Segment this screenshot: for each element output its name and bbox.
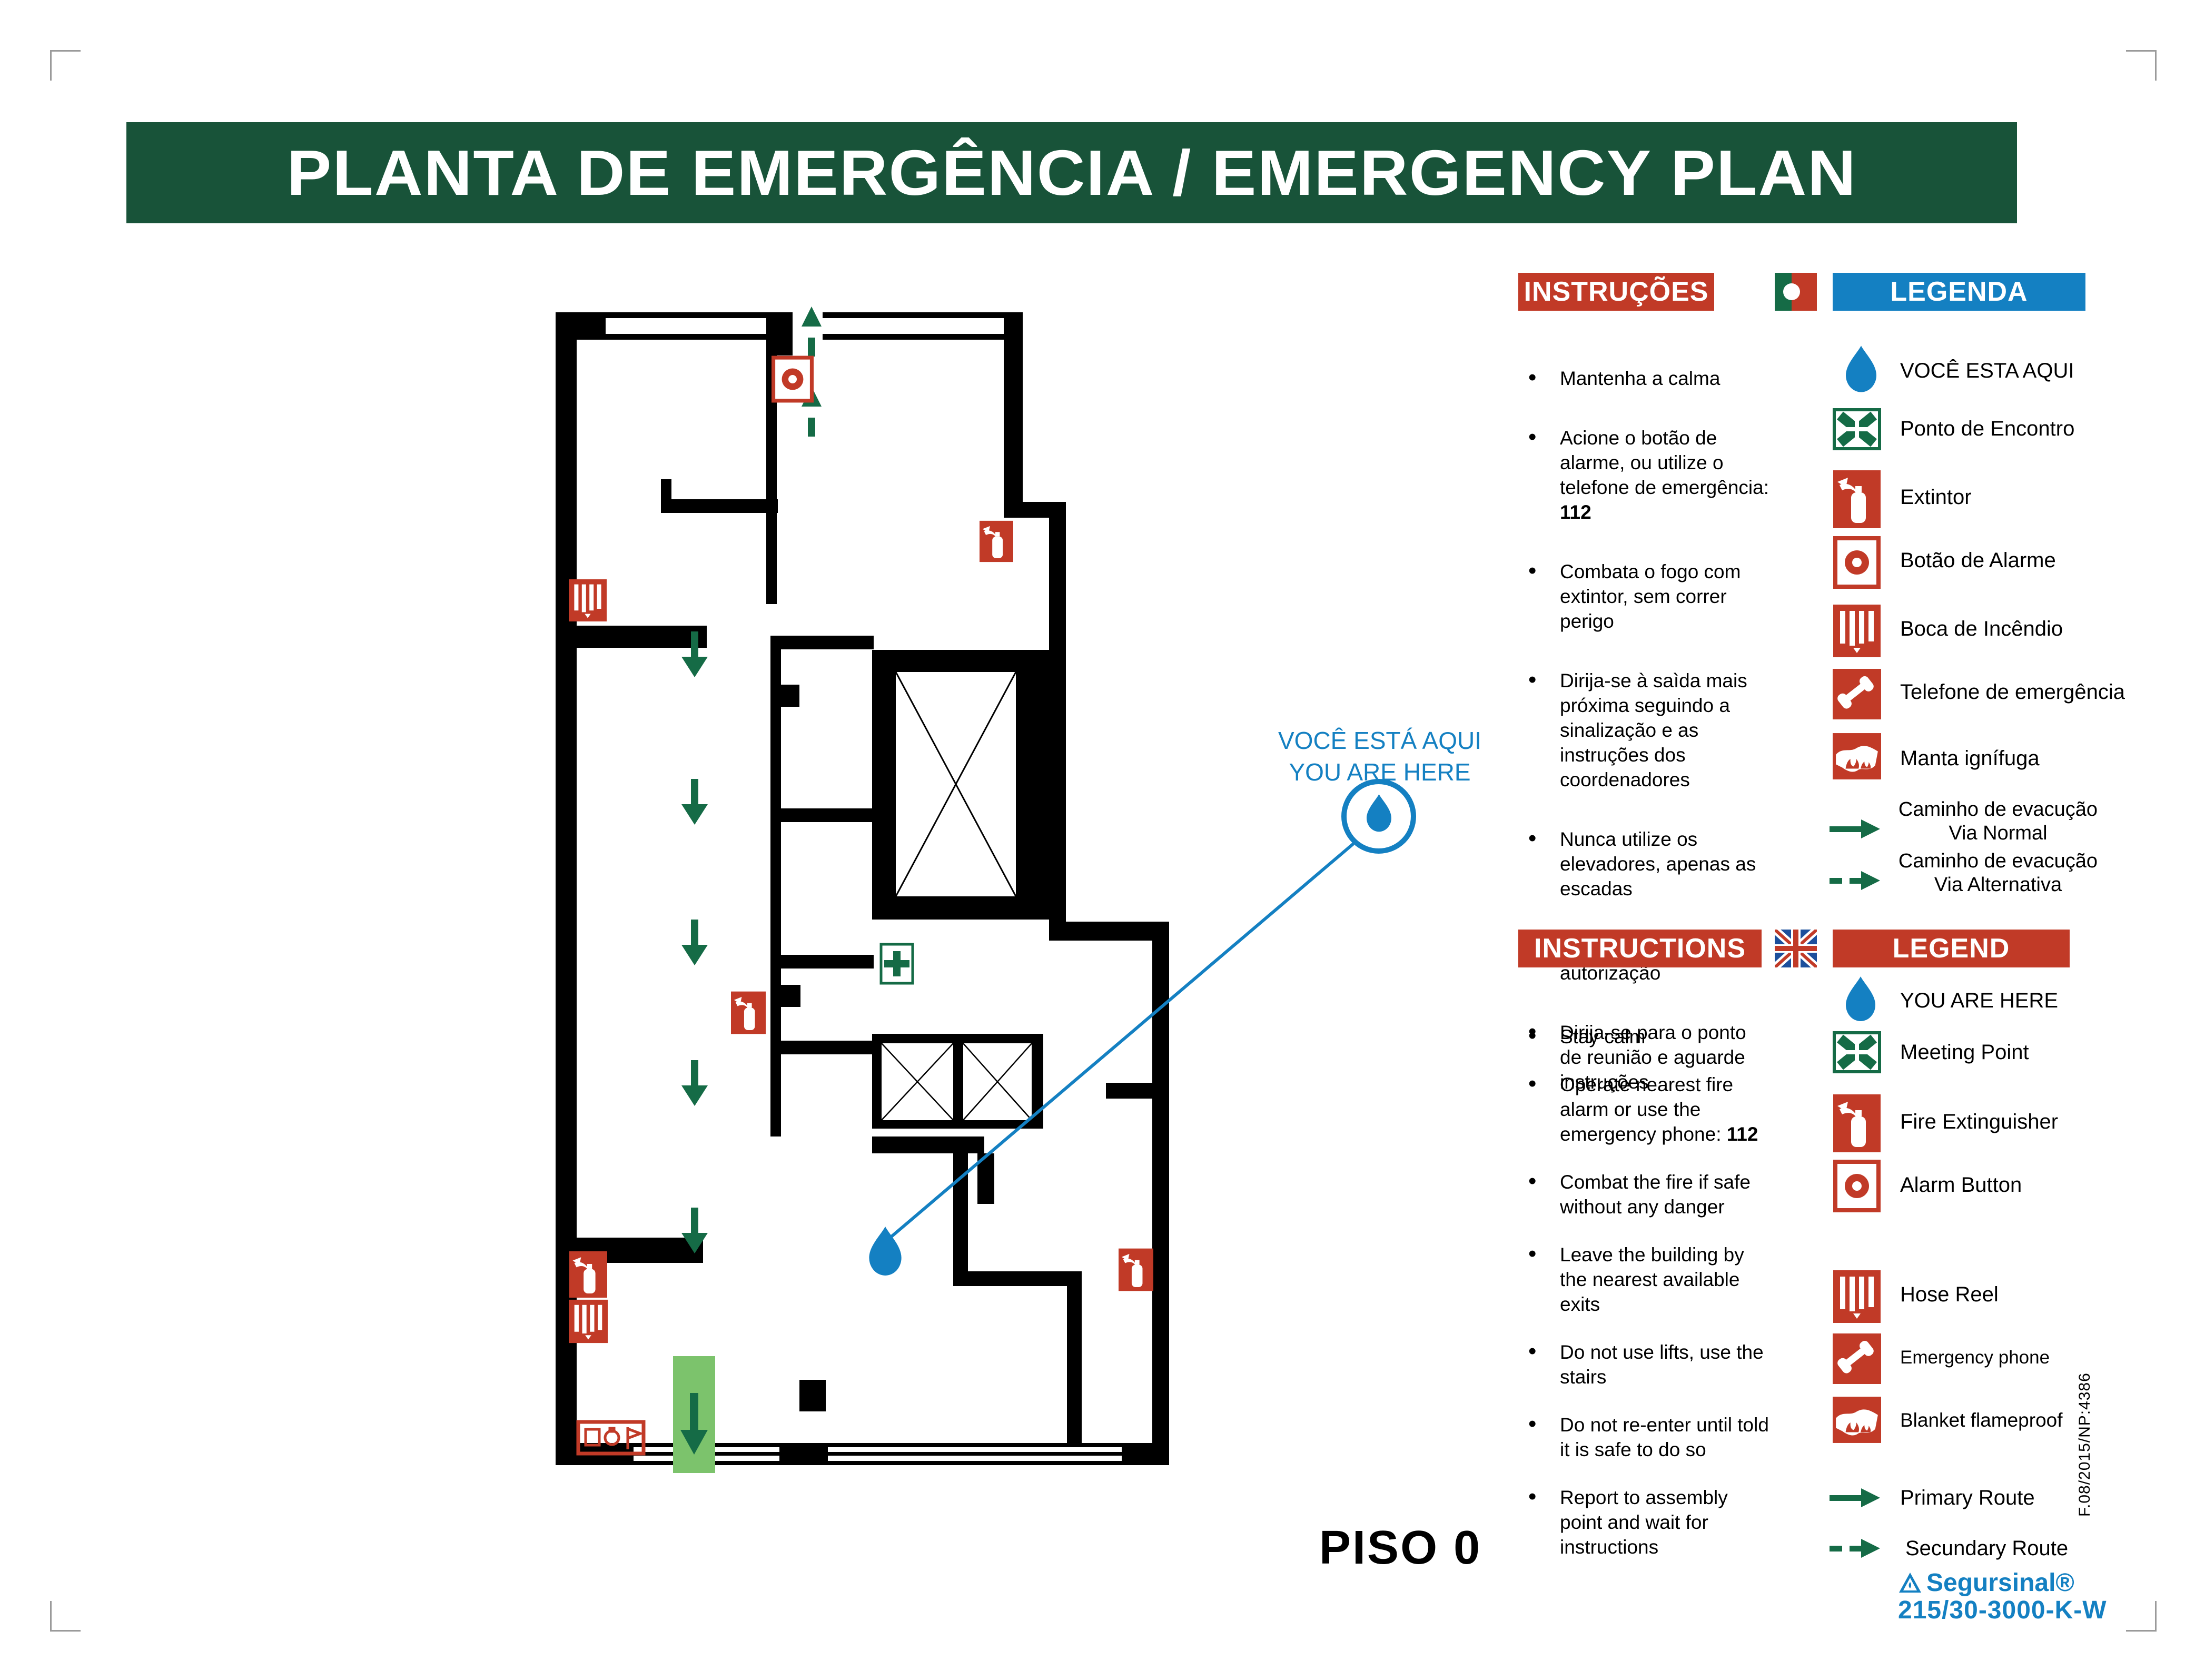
list-item: Do not re-enter until told it is safe to… — [1522, 1412, 1769, 1462]
legend-label: Telefone de emergência — [1900, 680, 2125, 704]
fire-extinguisher-icon — [1833, 470, 1881, 528]
pt-instructions-list: Mantenha a calma Acione o botão de alarm… — [1522, 366, 1769, 1129]
list-item: Do not use lifts, use the stairs — [1522, 1340, 1769, 1389]
list-item: Combat the fire if safe without any dang… — [1522, 1170, 1769, 1219]
legend-label: Blanket flameproof — [1900, 1409, 2063, 1431]
fire-extinguisher-icon — [569, 1251, 607, 1298]
legend-label: Via Normal — [1893, 822, 2103, 845]
legend-label: YOU ARE HERE — [1900, 989, 2058, 1013]
portugal-flag-icon — [1775, 273, 1817, 311]
you-are-here-drop-icon — [1846, 975, 1875, 1023]
list-item: Report to assembly point and wait for in… — [1522, 1485, 1769, 1559]
secondary-route-arrow-icon — [1830, 1537, 1882, 1560]
fire-extinguisher-icon — [1833, 1094, 1881, 1152]
brand-triangle-icon — [1898, 1572, 1922, 1595]
meeting-point-icon — [1833, 1031, 1881, 1073]
walls — [556, 312, 1169, 1465]
legend-label: Botão de Alarme — [1900, 549, 2056, 572]
first-aid-icon — [881, 944, 913, 983]
list-item: Nunca utilize os elevadores, apenas as e… — [1522, 827, 1769, 901]
marker-label-pt: VOCÊ ESTÁ AQUI — [1278, 727, 1481, 754]
primary-route-arrow-icon — [1830, 1486, 1882, 1509]
legend-label: Primary Route — [1900, 1486, 2035, 1510]
crop-mark — [2126, 50, 2157, 81]
legend-label: Alarm Button — [1900, 1173, 2022, 1197]
list-item: Acione o botão de alarme, ou utilize o t… — [1522, 426, 1769, 525]
en-instructions-list: Stay calm Operate nearest fire alarm or … — [1522, 1024, 1769, 1583]
legend-label: Fire Extinguisher — [1900, 1110, 2058, 1134]
fire-extinguisher-icon — [980, 521, 1013, 562]
list-item: Stay calm — [1522, 1024, 1769, 1049]
primary-route-arrows — [681, 631, 708, 1253]
brand-code: 215/30-3000-K-W — [1898, 1596, 2107, 1625]
legend-label: Via Alternativa — [1893, 874, 2103, 896]
legend-label: Caminho de evacução — [1893, 798, 2103, 821]
emergency-plan-page: PLANTA DE EMERGÊNCIA / EMERGENCY PLAN — [0, 0, 2205, 1680]
page-title: PLANTA DE EMERGÊNCIA / EMERGENCY PLAN — [286, 136, 1856, 210]
marker-label-en: YOU ARE HERE — [1289, 758, 1470, 786]
brand-name: Segursinal® — [1926, 1568, 2074, 1597]
primary-route-arrow-icon — [1830, 817, 1882, 841]
legend-label: Ponto de Encontro — [1900, 417, 2074, 441]
legend-label: Emergency phone — [1900, 1347, 2050, 1368]
hose-reel-icon — [569, 1300, 608, 1343]
legend-label: Caminho de evacução — [1893, 850, 2103, 873]
secondary-route-arrow-icon — [1830, 869, 1882, 892]
crop-mark — [2126, 1601, 2157, 1632]
stair-shaft — [896, 672, 1016, 896]
legend-label: Meeting Point — [1900, 1041, 2029, 1064]
legend-label: Manta ignífuga — [1900, 747, 2040, 770]
list-item: Operate nearest fire alarm or use the em… — [1522, 1072, 1769, 1147]
floor-plan: VOCÊ ESTÁ AQUI YOU ARE HERE — [548, 295, 1496, 1485]
legend-label: Secundary Route — [1905, 1537, 2068, 1560]
crop-mark — [50, 1601, 81, 1632]
legend-label: VOCÊ ESTA AQUI — [1900, 359, 2074, 383]
you-are-here-drop-icon — [1846, 345, 1876, 393]
fire-extinguisher-icon — [731, 992, 766, 1034]
en-instructions-header: INSTRUCTIONS — [1518, 930, 1762, 967]
emergency-phone-icon — [1833, 669, 1881, 719]
legend-label: Boca de Incêndio — [1900, 617, 2063, 641]
list-item: Leave the building by the nearest availa… — [1522, 1242, 1769, 1317]
hose-reel-icon — [1833, 1270, 1881, 1323]
legend-label: Hose Reel — [1900, 1283, 1999, 1307]
alarm-button-icon — [1833, 536, 1881, 589]
legend-label: Extintor — [1900, 486, 1972, 509]
crop-mark — [50, 50, 81, 81]
alarm-button-icon — [1833, 1160, 1881, 1212]
fire-blanket-icon — [1833, 733, 1881, 779]
floor-label: PISO 0 — [1319, 1521, 1481, 1575]
uk-flag-icon — [1775, 930, 1817, 967]
document-reference: F.08/2015/NP:4386 — [2076, 1372, 2094, 1517]
pt-legend-header: LEGENDA — [1833, 273, 2085, 311]
en-legend-header: LEGEND — [1833, 930, 2070, 967]
list-item: Dirija-se à saìda mais próxima seguindo … — [1522, 668, 1769, 792]
fire-extinguisher-icon — [1119, 1249, 1153, 1291]
title-banner: PLANTA DE EMERGÊNCIA / EMERGENCY PLAN — [126, 122, 2017, 223]
list-item: Combata o fogo com extintor, sem correr … — [1522, 559, 1769, 634]
emergency-phone-icon — [1833, 1333, 1881, 1384]
exit-strip — [673, 1356, 715, 1473]
brand-logo: Segursinal® — [1898, 1568, 2074, 1597]
list-item: Mantenha a calma — [1522, 366, 1769, 391]
meeting-point-icon — [1833, 408, 1881, 450]
hose-reel-icon — [1833, 605, 1881, 657]
pt-instructions-header: INSTRUÇÕES — [1518, 273, 1714, 311]
alarm-button-icon — [774, 358, 812, 401]
hose-reel-icon — [569, 579, 607, 621]
fire-blanket-icon — [1833, 1397, 1881, 1443]
